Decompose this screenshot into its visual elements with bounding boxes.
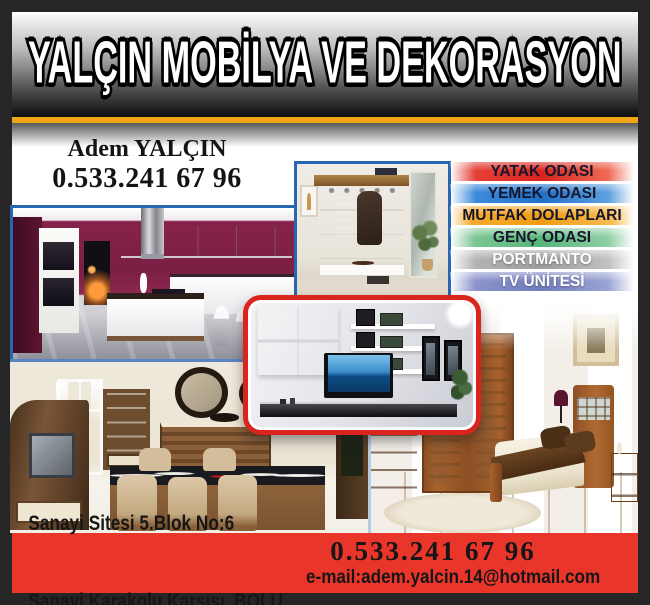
flatscreen-tv bbox=[324, 353, 393, 399]
tv-screen bbox=[328, 355, 390, 392]
business-title: YALÇIN MOBİLYA VE DEKORASYON bbox=[28, 31, 622, 98]
address-line-2: Sanayi Karakolu Karşısı BOLU bbox=[28, 589, 253, 605]
coatrack-bench bbox=[320, 263, 405, 275]
framed-art bbox=[422, 336, 440, 381]
footer-banner: Sanayi Sitesi 5.Blok No:6 Sanayi Karakol… bbox=[12, 533, 638, 593]
tv-unit-photo-frame bbox=[243, 295, 481, 435]
hallway-photo bbox=[294, 161, 451, 304]
service-label: YEMEK ODASI bbox=[488, 185, 597, 203]
hallway-plant bbox=[410, 219, 443, 266]
kitchen-stool bbox=[213, 305, 230, 347]
services-list: YATAK ODASI YEMEK ODASI MUTFAK DOLAPLARI… bbox=[450, 162, 634, 291]
service-label: GENÇ ODASI bbox=[493, 229, 591, 247]
contact-phone: 0.533.241 67 96 bbox=[18, 163, 276, 194]
service-label: YATAK ODASI bbox=[490, 163, 593, 181]
wall-shelf bbox=[351, 324, 435, 329]
kitchen-range-hood bbox=[141, 208, 164, 259]
service-label: MUTFAK DOLAPLARI bbox=[462, 207, 621, 225]
hallway-scene bbox=[297, 164, 448, 301]
tv-unit-scene bbox=[251, 303, 473, 427]
footer-contact-block: 0.533.241 67 96 e-mail:adem.yalcin.14@ho… bbox=[306, 537, 638, 590]
service-item-yemek-odasi: YEMEK ODASI bbox=[450, 184, 634, 203]
service-label: PORTMANTO bbox=[492, 251, 592, 269]
service-item-yatak-odasi: YATAK ODASI bbox=[450, 162, 634, 181]
service-item-tv-unitesi: TV ÜNİTESİ bbox=[450, 272, 634, 291]
coatrack-shelf bbox=[314, 175, 411, 186]
corner-plant bbox=[451, 365, 473, 407]
address-line-1: Sanayi Sitesi 5.Blok No:6 bbox=[28, 511, 253, 537]
display-cabinet-glass bbox=[107, 393, 146, 452]
service-item-genc-odasi: GENÇ ODASI bbox=[450, 228, 634, 247]
bed-footboard bbox=[490, 463, 502, 503]
hallway-picture-frame bbox=[300, 185, 318, 218]
kitchen-fireplace-niche bbox=[84, 241, 110, 304]
furniture-ad-poster: YALÇIN MOBİLYA VE DEKORASYON Adem YALÇIN… bbox=[0, 0, 650, 605]
contact-block: Adem YALÇIN 0.533.241 67 96 bbox=[18, 136, 276, 194]
kitchen-oven-column bbox=[39, 228, 79, 334]
footer-email: e-mail:adem.yalcin.14@hotmail.com bbox=[306, 566, 600, 590]
contact-name: Adem YALÇIN bbox=[18, 136, 276, 163]
service-label: TV ÜNİTESİ bbox=[499, 273, 584, 291]
pendant-lamp bbox=[440, 303, 473, 333]
kitchen-side-wall bbox=[13, 217, 42, 353]
decor-bowl bbox=[210, 413, 239, 422]
black-tv-console bbox=[260, 402, 458, 417]
address-block: Sanayi Sitesi 5.Blok No:6 Sanayi Karakol… bbox=[12, 459, 253, 605]
kitchen-island bbox=[107, 293, 204, 341]
hanging-coat bbox=[357, 191, 381, 244]
nightstand bbox=[611, 453, 638, 502]
bedroom-rug bbox=[384, 493, 541, 533]
service-item-portmanto: PORTMANTO bbox=[450, 250, 634, 269]
footer-phone: 0.533.241 67 96 bbox=[330, 537, 536, 566]
header-banner: YALÇIN MOBİLYA VE DEKORASYON bbox=[12, 12, 638, 117]
bedside-lamp bbox=[554, 390, 568, 406]
service-item-mutfak-dolaplari: MUTFAK DOLAPLARI bbox=[450, 206, 634, 225]
hanging-scarf bbox=[336, 193, 353, 241]
